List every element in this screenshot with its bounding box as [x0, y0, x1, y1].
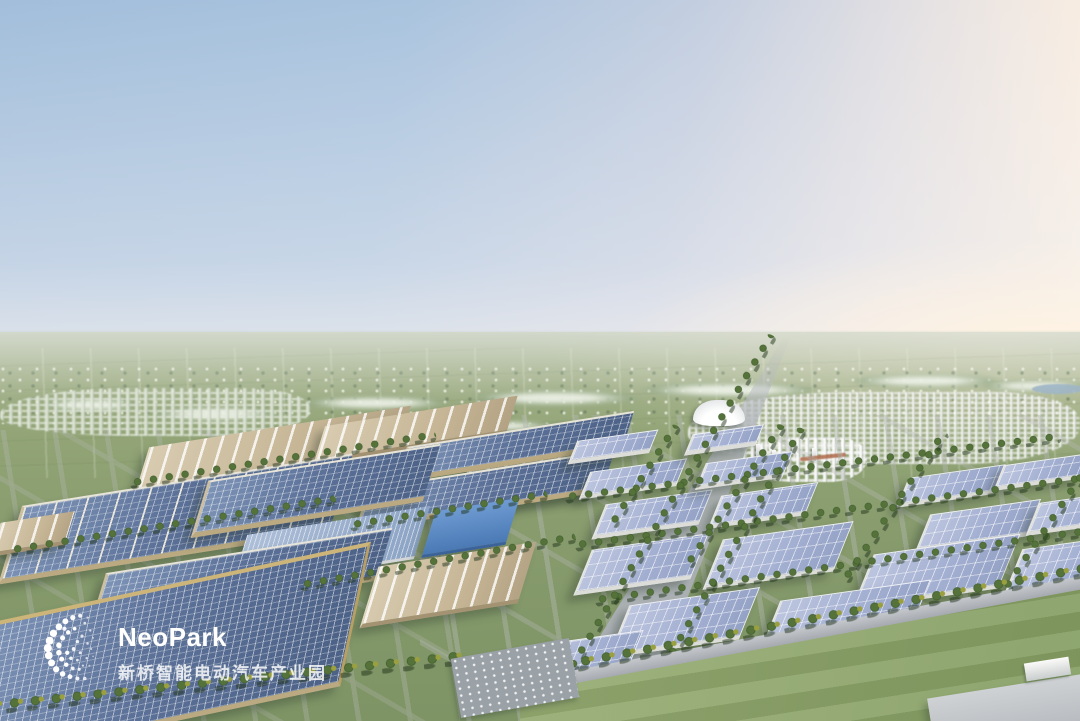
watermark: NeoPark 新桥智能电动汽车产业园: [34, 608, 327, 690]
sky-gradient: [0, 0, 1080, 338]
neopark-logo-mark: [34, 608, 106, 690]
watermark-text: NeoPark 新桥智能电动汽车产业园: [118, 608, 327, 684]
distant-pond: [1032, 384, 1080, 394]
aerial-park-rendering: NeoPark 新桥智能电动汽车产业园: [0, 0, 1080, 721]
brand-name: NeoPark: [118, 624, 327, 650]
tree-grove: [850, 374, 1000, 388]
brand-subtitle-cn: 新桥智能电动汽车产业园: [118, 659, 327, 684]
tree-grove: [300, 396, 450, 410]
